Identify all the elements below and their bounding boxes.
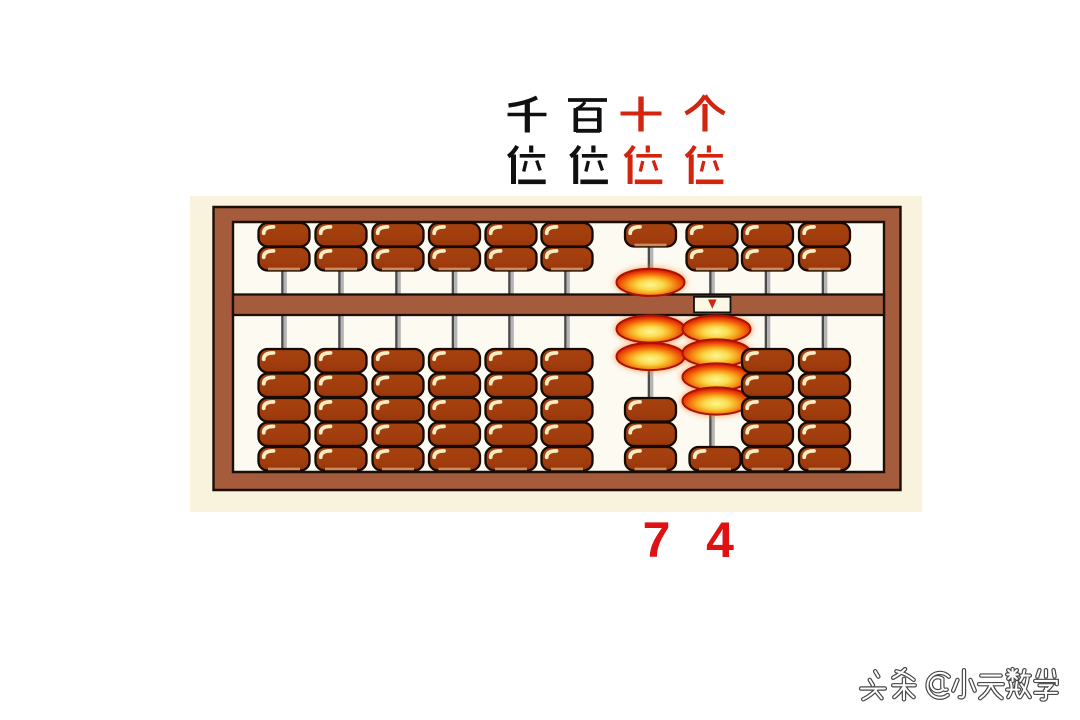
svg-text:4: 4	[706, 512, 734, 568]
svg-text:7: 7	[643, 512, 671, 568]
